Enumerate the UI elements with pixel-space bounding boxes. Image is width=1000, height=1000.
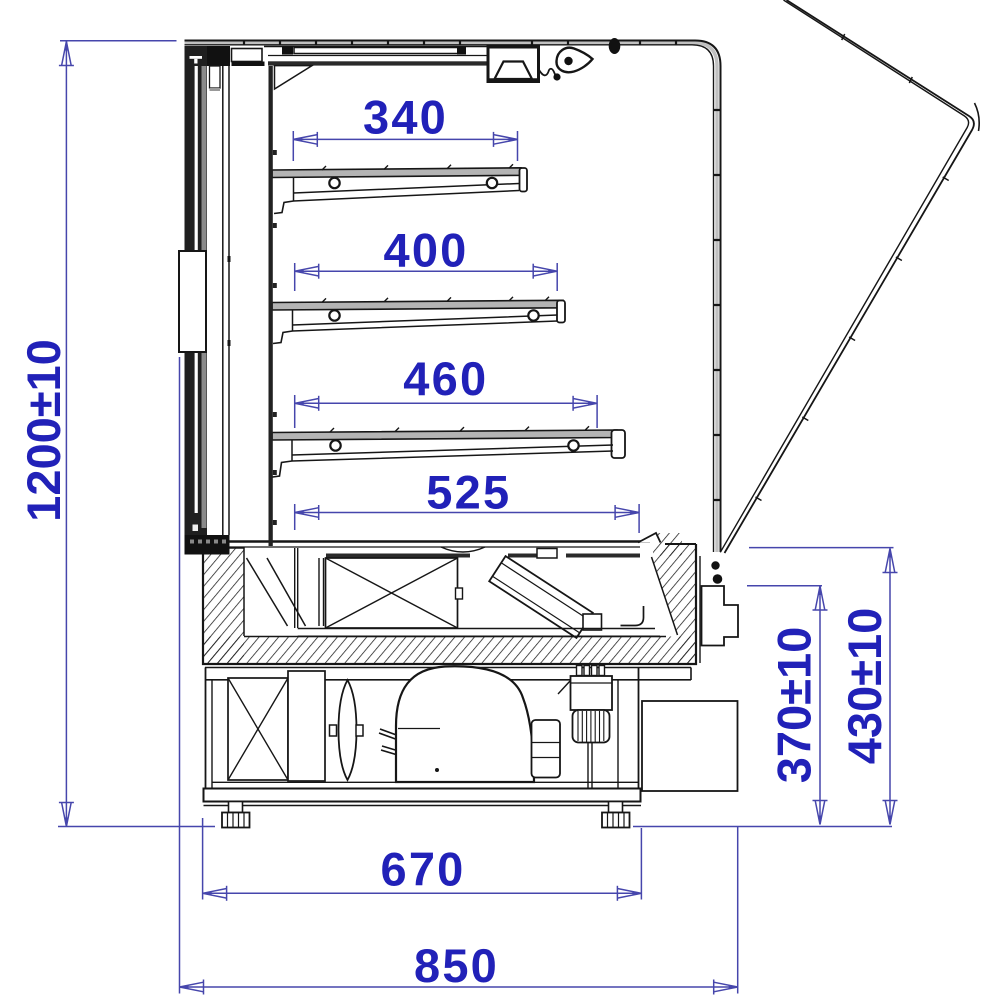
svg-text:340: 340 xyxy=(363,90,448,143)
svg-text:670: 670 xyxy=(380,842,465,895)
svg-text:400: 400 xyxy=(383,223,468,276)
svg-text:460: 460 xyxy=(403,352,488,405)
svg-text:850: 850 xyxy=(414,939,499,992)
svg-text:525: 525 xyxy=(426,465,511,518)
svg-text:370±10: 370±10 xyxy=(768,627,821,784)
svg-text:430±10: 430±10 xyxy=(838,608,891,765)
svg-text:1200±10: 1200±10 xyxy=(17,339,70,522)
